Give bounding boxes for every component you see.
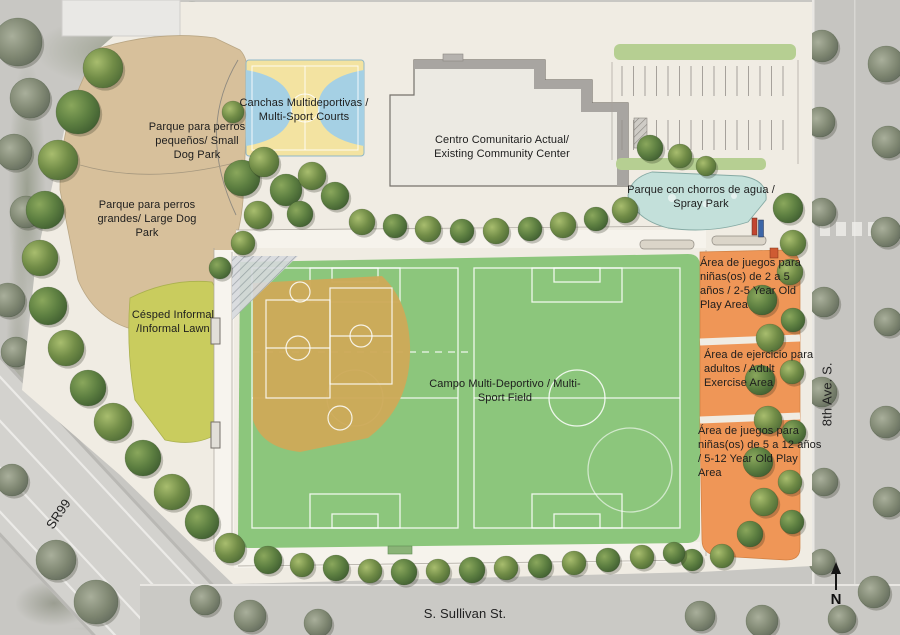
tree-icon bbox=[0, 464, 28, 496]
spray-park-label: Parque con chorros de agua / Spray Park bbox=[622, 183, 780, 211]
tree-icon bbox=[663, 542, 685, 564]
tree-icon bbox=[185, 505, 219, 539]
tree-icon bbox=[0, 134, 32, 170]
tree-icon bbox=[234, 600, 266, 632]
sullivan-street-label: S. Sullivan St. bbox=[400, 606, 530, 623]
tree-icon bbox=[415, 216, 441, 242]
tree-icon bbox=[209, 257, 231, 279]
tree-icon bbox=[873, 487, 900, 517]
tree-icon bbox=[750, 488, 778, 516]
tree-icon bbox=[231, 231, 255, 255]
tree-icon bbox=[871, 217, 900, 247]
tree-icon bbox=[459, 557, 485, 583]
tree-icon bbox=[637, 135, 663, 161]
large-dog-park-label: Parque para perros grandes/ Large Dog Pa… bbox=[88, 198, 206, 240]
tree-icon bbox=[56, 90, 100, 134]
tree-icon bbox=[29, 287, 67, 325]
tree-icon bbox=[22, 240, 58, 276]
tree-icon bbox=[494, 556, 518, 580]
tree-icon bbox=[26, 191, 64, 229]
tree-icon bbox=[746, 605, 778, 635]
tree-icon bbox=[48, 330, 84, 366]
tree-icon bbox=[483, 218, 509, 244]
tree-icon bbox=[550, 212, 576, 238]
informal-lawn-label: Césped Informal /Informal Lawn bbox=[126, 308, 220, 336]
park-master-plan: Canchas Multideportivas / Multi-Sport Co… bbox=[0, 0, 900, 635]
bench bbox=[712, 236, 766, 245]
tree-icon bbox=[94, 403, 132, 441]
adult-exercise-label: Área de ejercicio para adultos / Adult E… bbox=[704, 348, 816, 390]
tree-icon bbox=[74, 580, 118, 624]
tree-icon bbox=[38, 140, 78, 180]
tree-icon bbox=[190, 585, 220, 615]
tree-icon bbox=[249, 147, 279, 177]
tree-icon bbox=[518, 217, 542, 241]
offsite-building-roof bbox=[62, 0, 180, 36]
tree-icon bbox=[244, 201, 272, 229]
tree-icon bbox=[125, 440, 161, 476]
tree-icon bbox=[70, 370, 106, 406]
tree-icon bbox=[358, 559, 382, 583]
tree-icon bbox=[710, 544, 734, 568]
eighth-ave-street-label: 8th Ave. S. bbox=[820, 344, 837, 444]
tree-icon bbox=[874, 308, 900, 336]
soccer-goal-icon bbox=[211, 422, 220, 448]
tree-icon bbox=[426, 559, 450, 583]
tree-icon bbox=[870, 406, 900, 438]
tree-icon bbox=[10, 78, 50, 118]
tree-icon bbox=[383, 214, 407, 238]
play-area-5-12-label: Área de juegos para niñas(os) de 5 a 12 … bbox=[698, 424, 822, 480]
tree-icon bbox=[809, 287, 839, 317]
tree-icon bbox=[290, 553, 314, 577]
play-area-2-5-label: Área de juegos para niñas(os) de 2 a 5 a… bbox=[700, 256, 808, 312]
tree-icon bbox=[528, 554, 552, 578]
tree-icon bbox=[254, 546, 282, 574]
multi-sport-field-label: Campo Multi-Deportivo / Multi-Sport Fiel… bbox=[418, 377, 592, 405]
tree-icon bbox=[83, 48, 123, 88]
tree-icon bbox=[287, 201, 313, 227]
north-label: N bbox=[826, 591, 846, 608]
field-bench-icon bbox=[388, 546, 412, 554]
tree-icon bbox=[596, 548, 620, 572]
tree-icon bbox=[808, 198, 836, 226]
courts-label: Canchas Multideportivas / Multi-Sport Co… bbox=[238, 96, 370, 124]
tree-icon bbox=[668, 144, 692, 168]
tree-icon bbox=[391, 559, 417, 585]
tree-icon bbox=[828, 605, 856, 633]
bench bbox=[640, 240, 694, 249]
tree-icon bbox=[809, 549, 835, 575]
tree-icon bbox=[304, 609, 332, 635]
community-center-label: Centro Comunitario Actual/ Existing Comm… bbox=[418, 133, 586, 161]
tree-icon bbox=[780, 510, 804, 534]
tree-icon bbox=[323, 555, 349, 581]
tree-icon bbox=[154, 474, 190, 510]
west-walkway bbox=[214, 250, 234, 552]
tree-icon bbox=[858, 576, 890, 608]
tree-icon bbox=[868, 46, 900, 82]
tree-icon bbox=[737, 521, 763, 547]
tree-icon bbox=[562, 551, 586, 575]
tree-icon bbox=[696, 156, 716, 176]
tree-icon bbox=[450, 219, 474, 243]
tree-icon bbox=[298, 162, 326, 190]
small-dog-park-label: Parque para perros pequeños/ Small Dog P… bbox=[148, 120, 246, 162]
tree-icon bbox=[872, 126, 900, 158]
tree-icon bbox=[349, 209, 375, 235]
tree-icon bbox=[780, 230, 806, 256]
tree-icon bbox=[321, 182, 349, 210]
tree-icon bbox=[584, 207, 608, 231]
tree-icon bbox=[685, 601, 715, 631]
tree-icon bbox=[215, 533, 245, 563]
tree-icon bbox=[36, 540, 76, 580]
tree-icon bbox=[630, 545, 654, 569]
